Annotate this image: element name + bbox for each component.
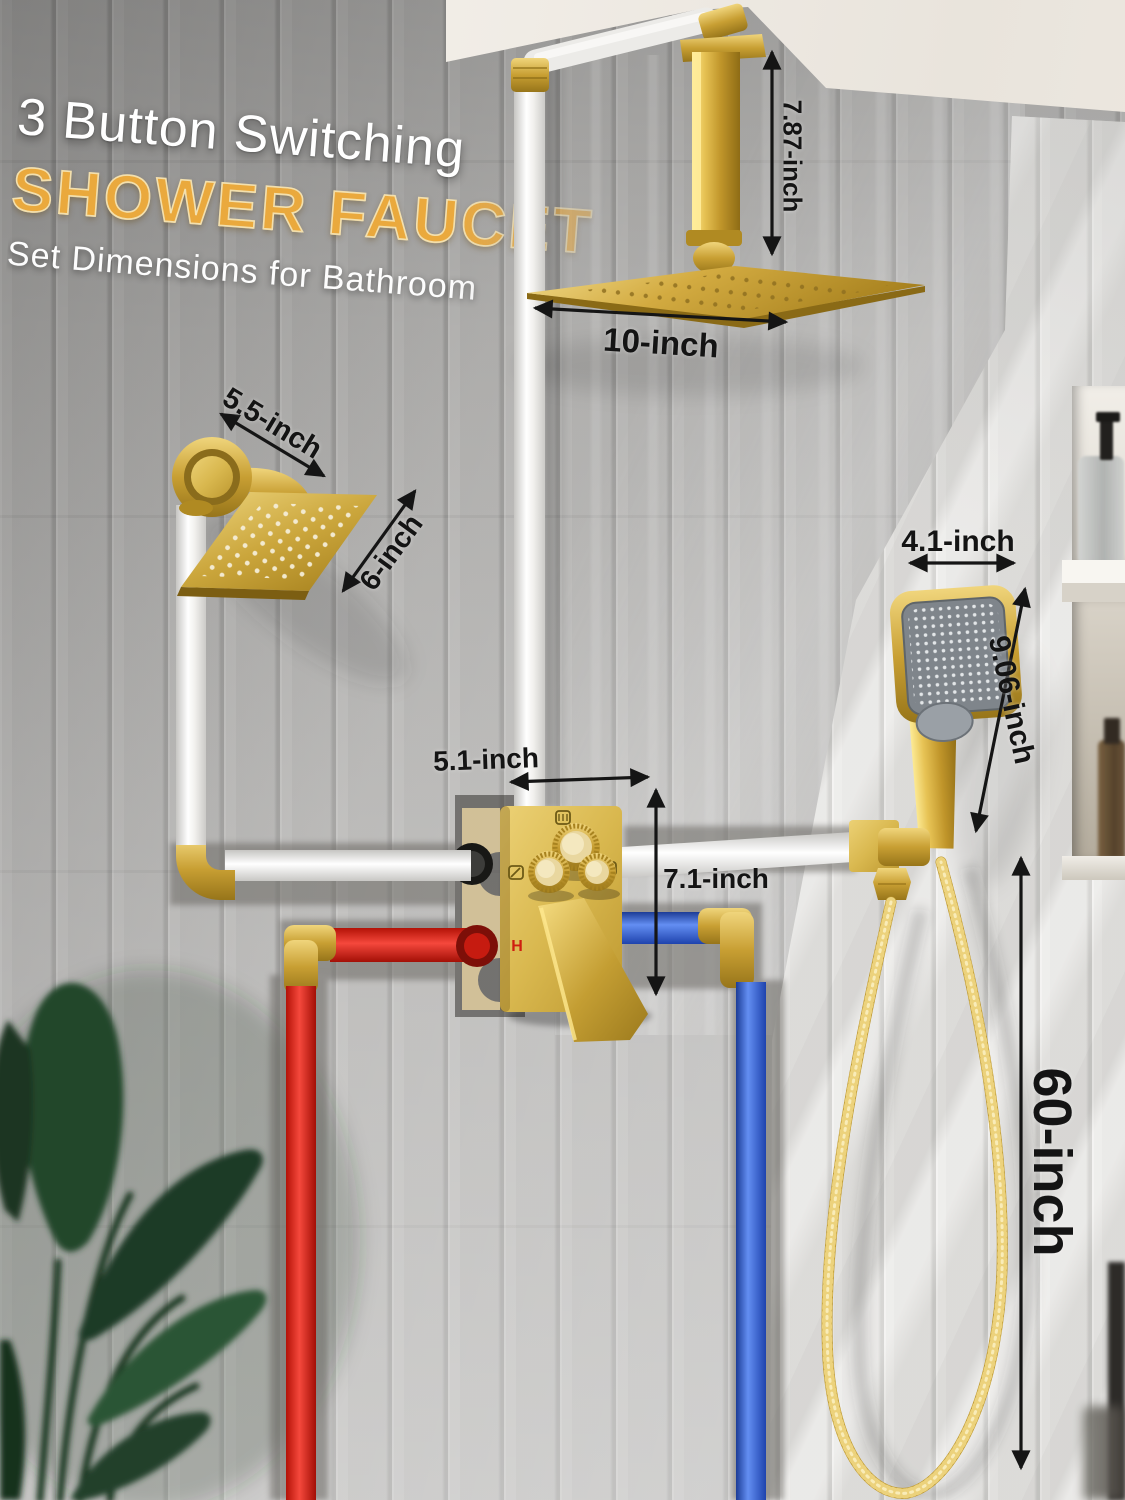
handheld-holder xyxy=(849,820,930,900)
dim-valve-width: 5.1-inch xyxy=(433,742,540,778)
product-infographic: 3 Button Switching SHOWER FAUCET Set Dim… xyxy=(0,0,1125,1500)
hot-water-label: H xyxy=(511,938,523,956)
dim-valve-height: 7.1-inch xyxy=(663,863,769,895)
dim-hand-width: 4.1-inch xyxy=(901,525,1014,559)
pipe-coupling-icon xyxy=(511,58,549,92)
ceiling-rain-shower xyxy=(527,34,925,328)
cold-water-pipe xyxy=(618,908,766,1500)
shower-system-scene xyxy=(0,0,1125,1500)
dim-hose-length: 60-inch xyxy=(1021,1067,1083,1256)
dim-rain-width: 10-inch xyxy=(602,321,720,366)
dim-ceiling-arm: 7.87-inch xyxy=(777,100,808,213)
